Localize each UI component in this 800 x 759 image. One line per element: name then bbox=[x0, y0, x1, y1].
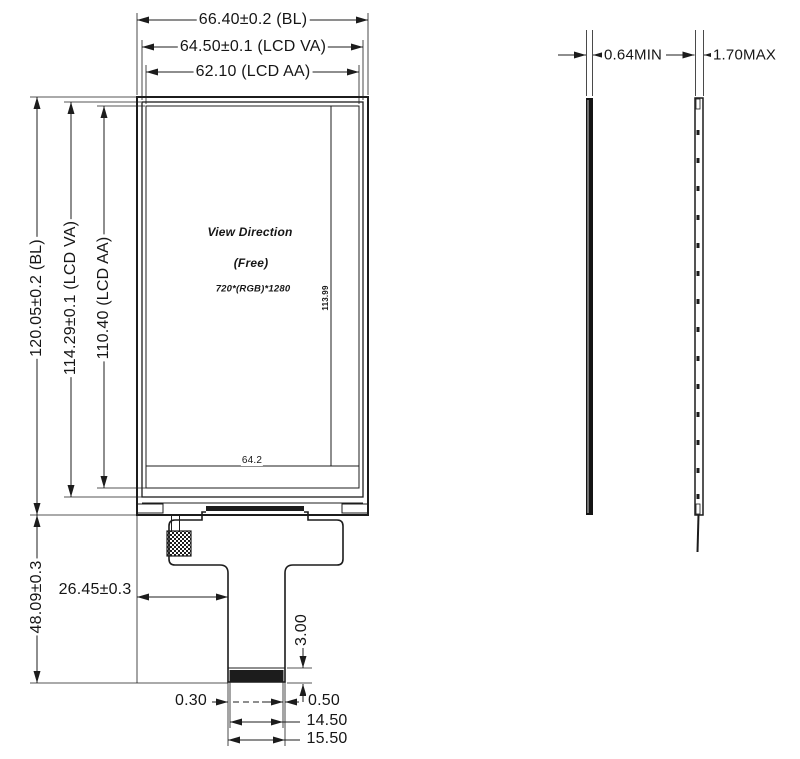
dim-label-aa-width: 62.10 (LCD AA) bbox=[194, 64, 313, 80]
dim-label-va-height: 114.29±0.1 (LCD VA) bbox=[63, 219, 79, 377]
side-view-module bbox=[666, 30, 709, 552]
lcd-outline-drawing: 66.40±0.2 (BL) 64.50±0.1 (LCD VA) 62.10 … bbox=[0, 0, 800, 759]
drawing-linework bbox=[0, 0, 800, 759]
dim-label-bottom-ledge: 64.2 bbox=[241, 456, 263, 466]
dim-label-tail-left-margin: 0.30 bbox=[173, 693, 209, 709]
dim-label-fpc-offset: 26.45±0.3 bbox=[57, 582, 134, 598]
dim-label-lcd-thickness: 0.64MIN bbox=[602, 48, 664, 63]
front-view-panel bbox=[137, 97, 368, 515]
view-mode-label: (Free) bbox=[232, 257, 271, 269]
view-direction-label: View Direction bbox=[205, 226, 294, 238]
dim-label-bl-height: 120.05±0.2 (BL) bbox=[29, 237, 45, 359]
dim-label-tail-width: 15.50 bbox=[304, 731, 349, 747]
dim-label-module-height: 48.09±0.3 bbox=[29, 559, 45, 636]
dim-label-bl-width: 66.40±0.2 (BL) bbox=[197, 12, 310, 28]
dim-label-module-thickness: 1.70MAX bbox=[711, 48, 778, 63]
fpc-connector-stiffener bbox=[230, 670, 284, 682]
fpc-component bbox=[167, 531, 191, 556]
dim-label-stiffener-height: 3.00 bbox=[294, 612, 310, 648]
dim-label-internal-height: 113.99 bbox=[322, 285, 330, 310]
dimension-lines-left bbox=[30, 97, 146, 515]
dim-label-contact-width: 14.50 bbox=[304, 713, 349, 729]
resolution-label: 720*(RGB)*1280 bbox=[214, 284, 293, 294]
dim-label-va-width: 64.50±0.1 (LCD VA) bbox=[178, 39, 328, 55]
dim-label-tail-right-margin: 0.50 bbox=[306, 693, 342, 709]
side-view-lcd bbox=[558, 30, 600, 515]
dim-label-aa-height: 110.40 (LCD AA) bbox=[96, 235, 112, 362]
